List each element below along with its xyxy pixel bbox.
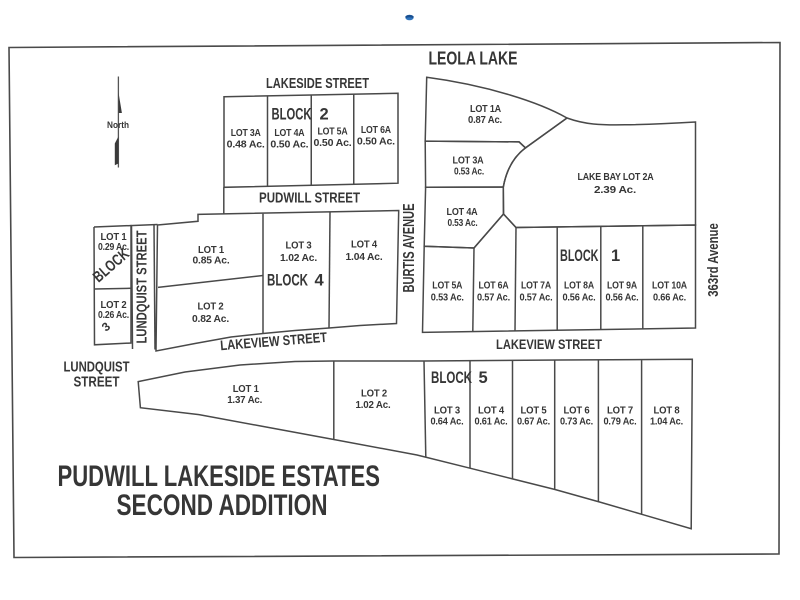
svg-text:0.61 Ac.: 0.61 Ac. bbox=[475, 416, 508, 428]
svg-text:LOT 4: LOT 4 bbox=[351, 239, 377, 251]
svg-text:0.53 Ac.: 0.53 Ac. bbox=[431, 292, 464, 304]
svg-text:BLOCK: BLOCK bbox=[560, 247, 599, 265]
svg-text:0.57 Ac.: 0.57 Ac. bbox=[520, 292, 553, 304]
svg-text:LAKE BAY LOT 2A: LAKE BAY LOT 2A bbox=[578, 171, 655, 183]
svg-text:BLOCK: BLOCK bbox=[431, 369, 472, 387]
svg-text:LOT 1: LOT 1 bbox=[233, 383, 259, 395]
svg-text:1.02 Ac.: 1.02 Ac. bbox=[356, 399, 391, 411]
svg-text:0.50 Ac.: 0.50 Ac. bbox=[357, 136, 395, 148]
svg-text:363rd Avenue: 363rd Avenue bbox=[706, 223, 722, 297]
svg-text:0.53 Ac.: 0.53 Ac. bbox=[448, 217, 478, 229]
svg-text:LUNDQUIST STREET: LUNDQUIST STREET bbox=[134, 231, 151, 344]
svg-text:LOT 3A: LOT 3A bbox=[231, 127, 262, 139]
svg-text:4: 4 bbox=[315, 272, 325, 290]
svg-text:BLOCK: BLOCK bbox=[267, 272, 308, 290]
svg-text:0.66 Ac.: 0.66 Ac. bbox=[653, 292, 686, 304]
svg-text:SECOND ADDITION: SECOND ADDITION bbox=[117, 489, 328, 522]
svg-text:LOT 2: LOT 2 bbox=[361, 388, 387, 400]
svg-text:0.64 Ac.: 0.64 Ac. bbox=[431, 416, 464, 428]
svg-text:0.82 Ac.: 0.82 Ac. bbox=[192, 313, 229, 325]
svg-text:BURTIS AVENUE: BURTIS AVENUE bbox=[401, 204, 418, 293]
svg-text:LOT 8A: LOT 8A bbox=[564, 280, 595, 292]
svg-text:2: 2 bbox=[320, 106, 329, 124]
svg-text:2.39 Ac.: 2.39 Ac. bbox=[594, 184, 636, 196]
svg-text:LOT 10A: LOT 10A bbox=[652, 280, 688, 292]
svg-text:LAKEVIEW STREET: LAKEVIEW STREET bbox=[496, 336, 602, 352]
svg-text:LOT 3: LOT 3 bbox=[286, 240, 312, 252]
svg-text:5: 5 bbox=[479, 369, 488, 387]
svg-text:BLOCK: BLOCK bbox=[272, 106, 312, 124]
svg-text:LOT 2: LOT 2 bbox=[198, 301, 224, 313]
svg-text:0.26 Ac.: 0.26 Ac. bbox=[98, 309, 129, 321]
svg-text:0.87 Ac.: 0.87 Ac. bbox=[468, 114, 502, 126]
svg-text:LOT 7A: LOT 7A bbox=[521, 280, 552, 292]
svg-text:0.50 Ac.: 0.50 Ac. bbox=[270, 139, 308, 151]
svg-text:LOT 5A: LOT 5A bbox=[432, 280, 463, 292]
svg-text:PUDWILL STREET: PUDWILL STREET bbox=[259, 190, 360, 207]
svg-text:0.67 Ac.: 0.67 Ac. bbox=[517, 416, 550, 428]
svg-text:LAKESIDE STREET: LAKESIDE STREET bbox=[266, 75, 369, 92]
svg-text:LEOLA LAKE: LEOLA LAKE bbox=[429, 48, 518, 69]
svg-text:LOT 9A: LOT 9A bbox=[607, 280, 638, 292]
svg-text:0.50 Ac.: 0.50 Ac. bbox=[314, 137, 352, 149]
svg-text:0.56 Ac.: 0.56 Ac. bbox=[563, 292, 596, 304]
svg-text:LOT 6A: LOT 6A bbox=[479, 280, 510, 292]
svg-text:LOT 5A: LOT 5A bbox=[318, 126, 349, 138]
svg-text:0.73 Ac.: 0.73 Ac. bbox=[560, 416, 593, 428]
svg-text:1.04 Ac.: 1.04 Ac. bbox=[346, 251, 383, 263]
svg-text:1.37 Ac.: 1.37 Ac. bbox=[227, 394, 262, 406]
svg-text:0.56 Ac.: 0.56 Ac. bbox=[606, 292, 639, 304]
svg-text:LOT 4A: LOT 4A bbox=[274, 127, 305, 139]
svg-text:0.48 Ac.: 0.48 Ac. bbox=[227, 139, 265, 151]
svg-text:0.79 Ac.: 0.79 Ac. bbox=[604, 416, 637, 428]
svg-text:0.53 Ac.: 0.53 Ac. bbox=[454, 166, 484, 178]
svg-text:1.02 Ac.: 1.02 Ac. bbox=[280, 252, 317, 264]
svg-text:STREET: STREET bbox=[74, 374, 120, 391]
svg-text:1: 1 bbox=[611, 247, 620, 265]
svg-text:LOT 6A: LOT 6A bbox=[361, 124, 392, 136]
svg-text:0.57 Ac.: 0.57 Ac. bbox=[477, 292, 510, 304]
svg-text:0.85 Ac.: 0.85 Ac. bbox=[193, 255, 230, 267]
svg-text:North: North bbox=[107, 120, 129, 131]
svg-text:1.04 Ac.: 1.04 Ac. bbox=[650, 416, 683, 428]
